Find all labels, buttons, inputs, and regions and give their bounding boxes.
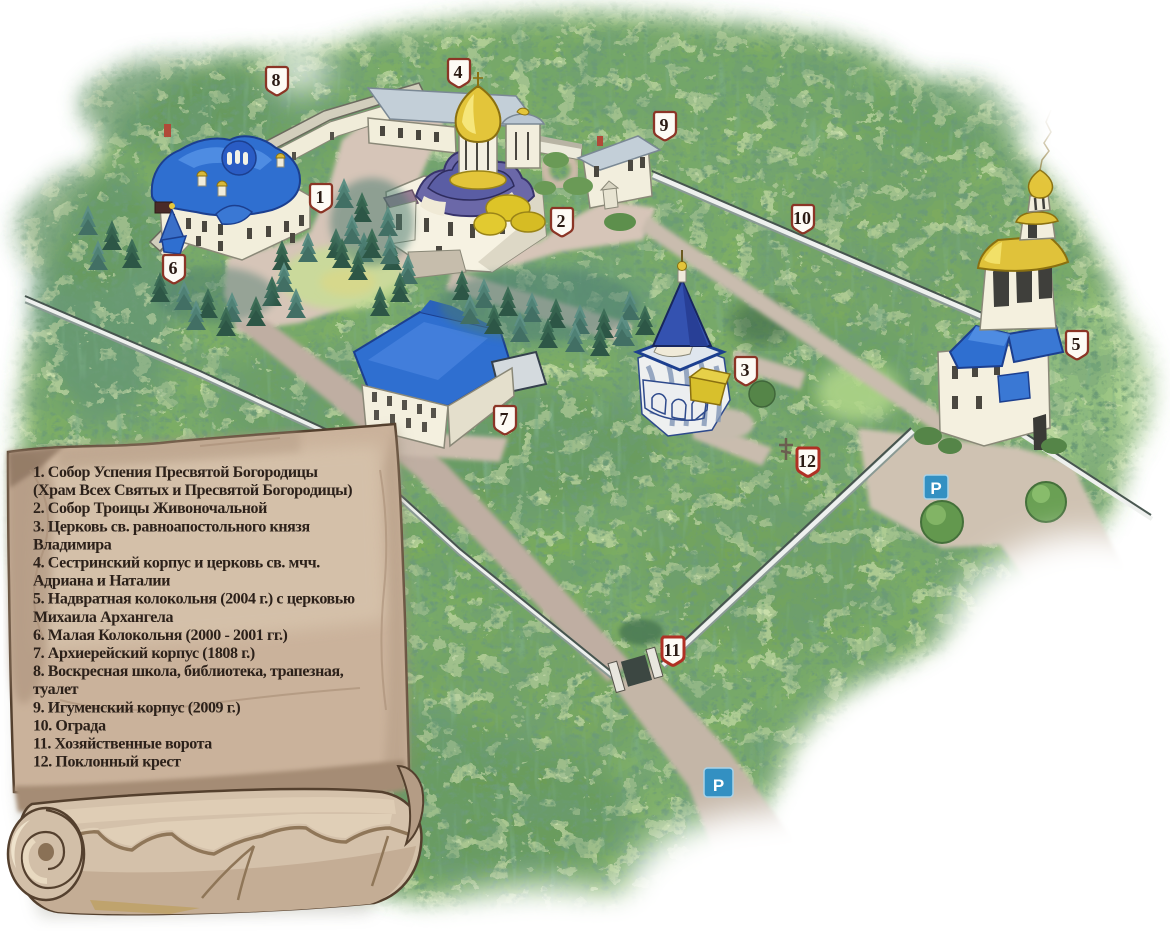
- svg-text:5. Надвратная колокольня (2004: 5. Надвратная колокольня (2004 г.) с цер…: [33, 591, 355, 608]
- svg-text:P: P: [713, 776, 724, 795]
- svg-text:3: 3: [741, 360, 750, 380]
- svg-text:туалет: туалет: [33, 681, 79, 698]
- svg-text:11: 11: [663, 640, 680, 660]
- svg-text:8. Воскресная школа, библиотек: 8. Воскресная школа, библиотека, трапезн…: [33, 663, 344, 680]
- svg-text:4. Сестринский корпус и церков: 4. Сестринский корпус и церковь св. мчч.: [33, 555, 320, 572]
- svg-text:10. Ограда: 10. Ограда: [33, 717, 106, 734]
- svg-text:4: 4: [454, 62, 463, 82]
- svg-text:12: 12: [798, 451, 816, 471]
- svg-text:7. Архиерейский корпус (1808 г: 7. Архиерейский корпус (1808 г.): [33, 645, 255, 662]
- svg-text:6: 6: [169, 258, 178, 278]
- svg-text:1. Собор Успения Пресвятой Бог: 1. Собор Успения Пресвятой Богородицы: [33, 464, 318, 481]
- svg-text:5: 5: [1072, 334, 1081, 354]
- svg-text:Адриана и Наталии: Адриана и Наталии: [33, 573, 170, 590]
- svg-text:6. Малая Колокольня (2000 - 20: 6. Малая Колокольня (2000 - 2001 гг.): [33, 627, 288, 644]
- svg-text:8: 8: [272, 70, 281, 90]
- svg-text:9. Игуменский корпус (2009 г.): 9. Игуменский корпус (2009 г.): [33, 699, 240, 716]
- svg-text:11. Хозяйственные ворота: 11. Хозяйственные ворота: [33, 736, 212, 753]
- svg-text:1: 1: [316, 187, 325, 207]
- svg-text:Михаила Архангела: Михаила Архангела: [33, 609, 173, 626]
- svg-text:2. Собор Троицы Живоночальной: 2. Собор Троицы Живоночальной: [33, 500, 267, 517]
- svg-text:Владимира: Владимира: [33, 536, 112, 553]
- svg-text:P: P: [930, 479, 941, 498]
- svg-text:10: 10: [793, 208, 811, 228]
- svg-text:7: 7: [500, 409, 509, 429]
- svg-text:2: 2: [557, 211, 566, 231]
- svg-text:12. Поклонный крест: 12. Поклонный крест: [33, 754, 181, 771]
- svg-text:9: 9: [660, 115, 669, 135]
- svg-text:(Храм Всех Святых и Пресвятой: (Храм Всех Святых и Пресвятой Богородицы…: [33, 482, 352, 499]
- svg-text:3. Церковь св. равноапостольно: 3. Церковь св. равноапостольного князя: [33, 518, 310, 535]
